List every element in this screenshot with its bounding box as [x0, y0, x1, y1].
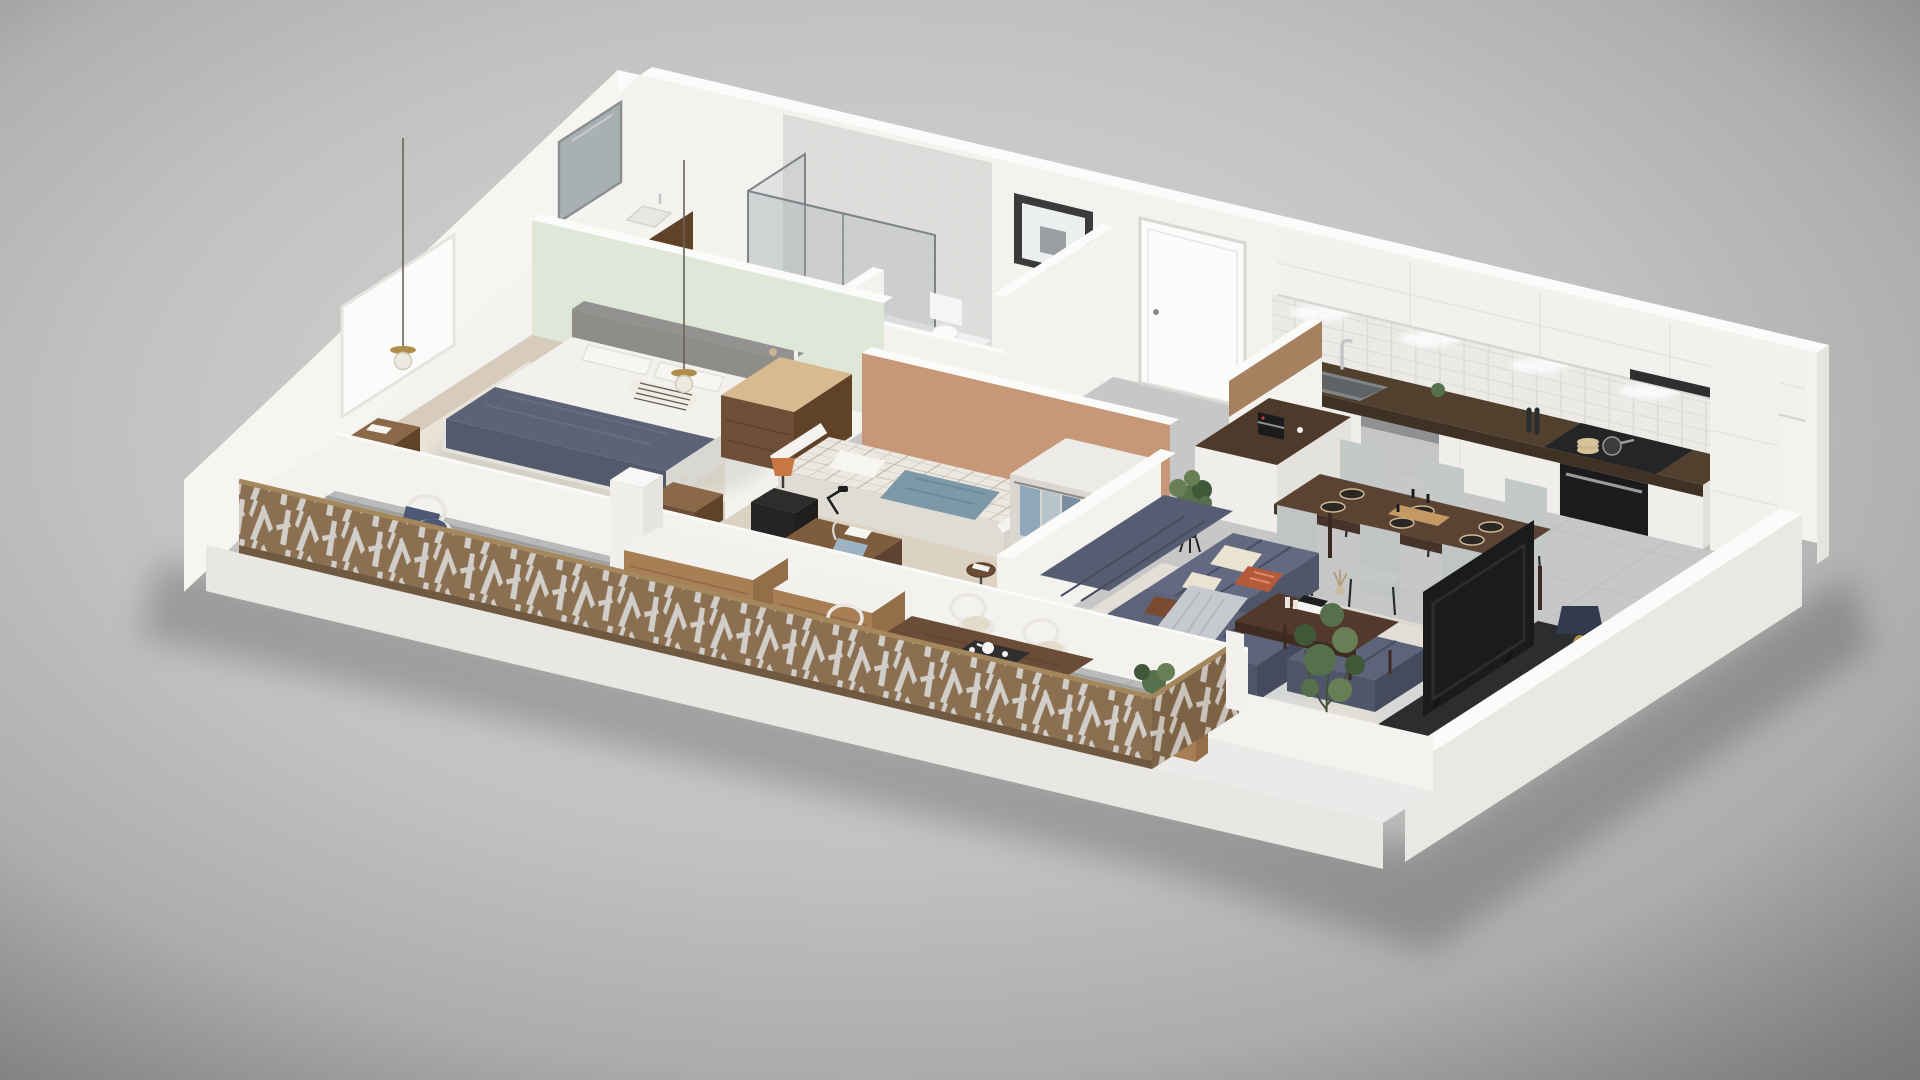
door-handle [1153, 309, 1159, 315]
vase [1335, 585, 1345, 595]
railing-end-post [1226, 630, 1244, 712]
apartment-cutaway-scene [0, 0, 1920, 1080]
teapot [982, 642, 994, 654]
floorplan-render [0, 0, 1920, 1080]
counter-plant [1431, 383, 1445, 397]
mug [1297, 427, 1303, 433]
teacup [1002, 651, 1008, 657]
orange-lamp [771, 458, 795, 476]
candle [1293, 600, 1298, 609]
candle [1285, 597, 1290, 608]
plate-stack [1577, 438, 1599, 454]
pan [1603, 437, 1621, 455]
